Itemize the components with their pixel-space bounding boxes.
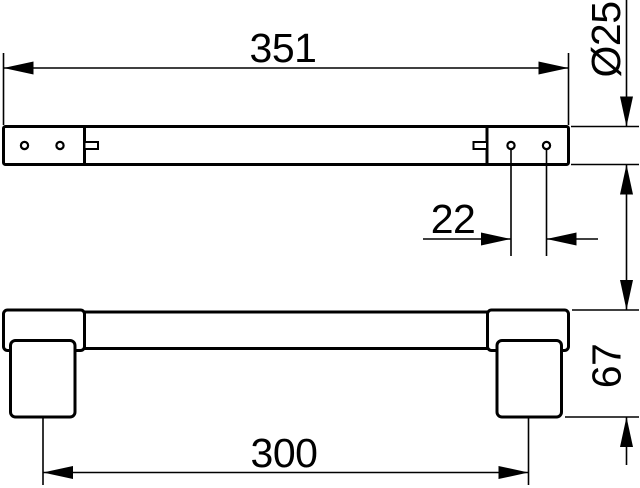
mounting-hole xyxy=(507,142,514,149)
arrowhead-left xyxy=(43,466,73,479)
arrowhead-down xyxy=(620,280,633,310)
mounting-hole xyxy=(21,142,28,149)
drawing-canvas: 351 Ø25 22 xyxy=(0,0,640,488)
arrowhead-up xyxy=(620,165,633,195)
front-view xyxy=(4,310,569,417)
technical-drawing: 351 Ø25 22 xyxy=(0,0,640,488)
detent-notch-left xyxy=(85,142,99,149)
arrowhead-right xyxy=(499,466,529,479)
dimension-bar-diameter: Ø25 xyxy=(571,0,639,310)
mounting-hole xyxy=(56,142,63,149)
arrowhead-up xyxy=(620,417,633,447)
wall-post-left xyxy=(11,341,76,418)
dim-label-hole-spacing: 22 xyxy=(431,196,476,242)
dim-label-mounting-centers: 300 xyxy=(251,430,318,476)
dimension-overall-length: 351 xyxy=(4,25,569,125)
dimension-mounting-centers: 300 xyxy=(43,417,529,485)
arrowhead-right xyxy=(481,233,511,246)
dim-label-overall-length: 351 xyxy=(250,25,317,71)
bar-tube xyxy=(85,312,488,349)
arrowhead-right xyxy=(539,62,569,75)
dimension-overall-height: 67 xyxy=(565,280,639,465)
dim-label-bar-diameter: Ø25 xyxy=(583,2,629,78)
detent-notch-right xyxy=(474,142,488,149)
arrowhead-left xyxy=(4,62,34,75)
dim-label-overall-height: 67 xyxy=(584,344,630,389)
wall-post-right xyxy=(497,341,562,418)
arrowhead-left xyxy=(547,233,577,246)
mounting-hole xyxy=(543,142,550,149)
top-view xyxy=(4,127,569,165)
arrowhead-down xyxy=(620,97,633,127)
